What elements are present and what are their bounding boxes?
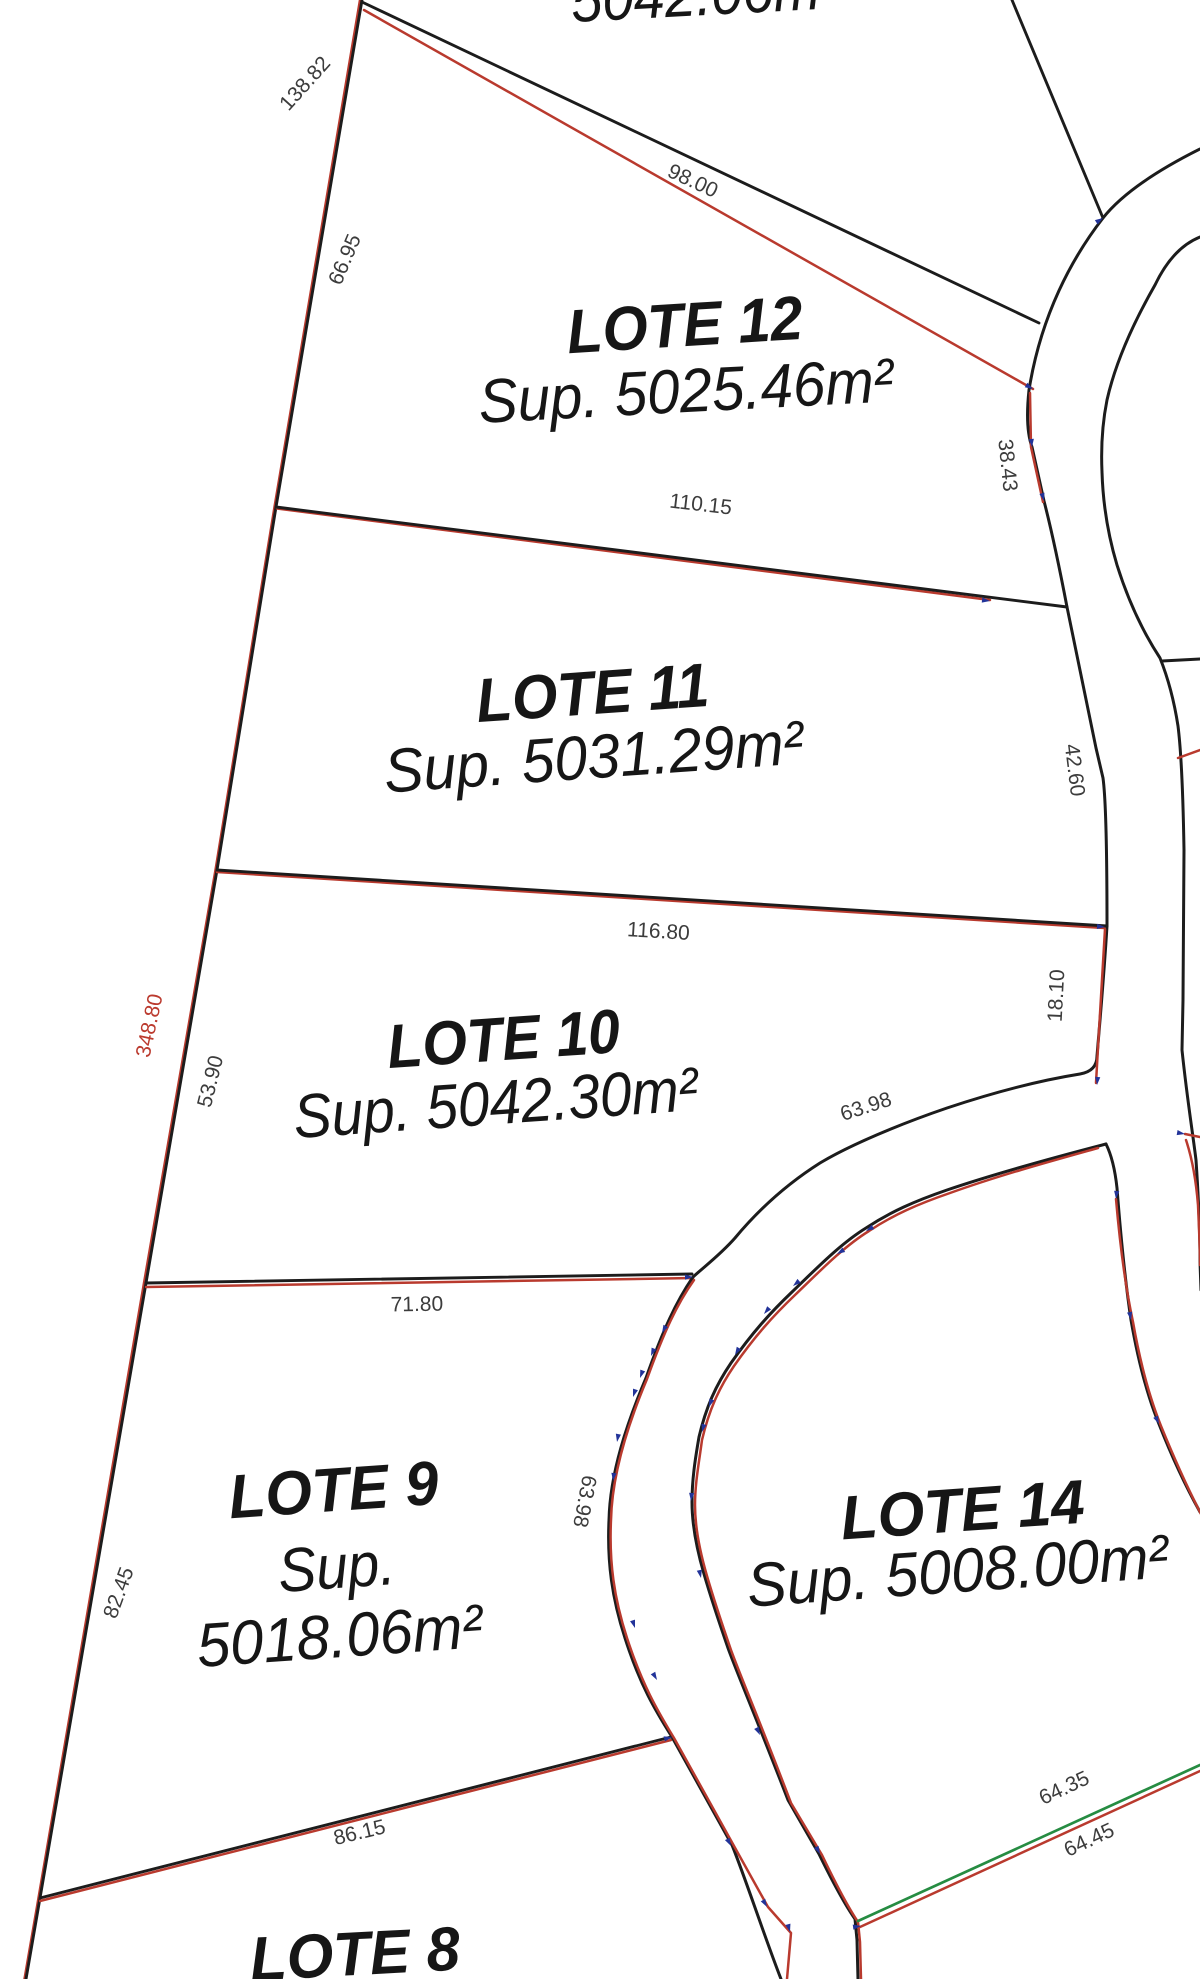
svg-text:138.82: 138.82 bbox=[275, 52, 335, 115]
svg-text:LOTE 9: LOTE 9 bbox=[226, 1449, 441, 1533]
svg-text:5042.06m²: 5042.06m² bbox=[569, 0, 842, 36]
svg-text:63.98: 63.98 bbox=[837, 1088, 894, 1126]
svg-text:66.95: 66.95 bbox=[324, 231, 366, 288]
svg-text:82.45: 82.45 bbox=[99, 1564, 139, 1621]
svg-text:5018.06m²: 5018.06m² bbox=[195, 1592, 487, 1681]
svg-text:63.98: 63.98 bbox=[568, 1473, 601, 1529]
svg-text:64.35: 64.35 bbox=[1036, 1767, 1093, 1810]
svg-text:116.80: 116.80 bbox=[626, 918, 690, 945]
svg-text:Sup.: Sup. bbox=[276, 1529, 398, 1606]
svg-text:71.80: 71.80 bbox=[390, 1293, 443, 1317]
svg-text:Sup. 5042.30m²: Sup. 5042.30m² bbox=[291, 1055, 702, 1152]
svg-text:LOTE 8: LOTE 8 bbox=[248, 1915, 462, 1979]
svg-text:110.15: 110.15 bbox=[668, 490, 733, 520]
svg-text:Sup. 5031.29m²: Sup. 5031.29m² bbox=[382, 708, 808, 806]
svg-text:53.90: 53.90 bbox=[193, 1053, 228, 1110]
svg-text:Sup. 5025.46m²: Sup. 5025.46m² bbox=[477, 346, 897, 437]
svg-text:42.60: 42.60 bbox=[1060, 743, 1089, 798]
svg-text:38.43: 38.43 bbox=[993, 438, 1021, 493]
svg-text:348.80: 348.80 bbox=[132, 992, 168, 1060]
svg-text:Sup. 5008.00m²: Sup. 5008.00m² bbox=[745, 1522, 1173, 1620]
svg-text:18.10: 18.10 bbox=[1044, 969, 1070, 1023]
